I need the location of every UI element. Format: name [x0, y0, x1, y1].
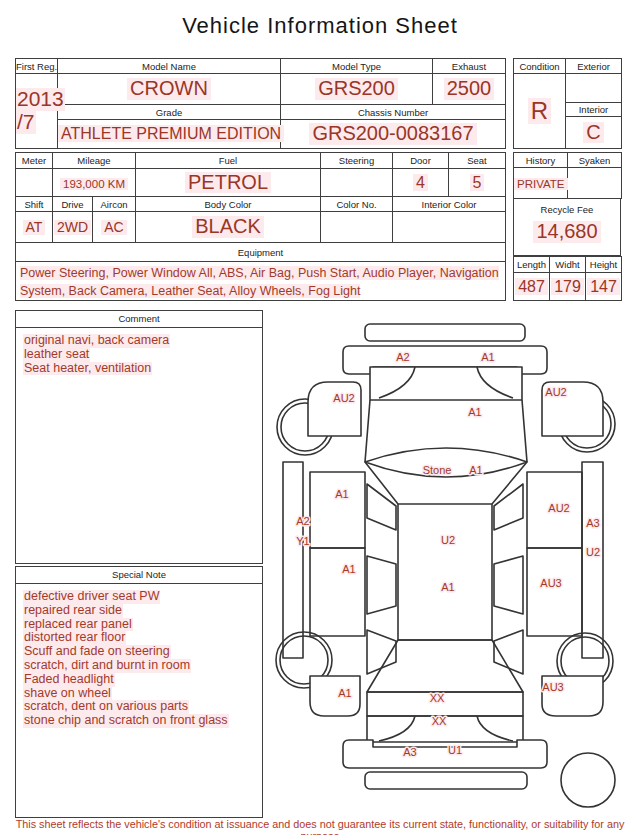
condition-grades-table: Condition Exterior R Interior C — [513, 58, 622, 149]
equipment-value: Power Steering, Power Window All, ABS, A… — [16, 262, 506, 301]
comment-box: Comment original navi, back camera leath… — [15, 310, 263, 564]
model-name-label: Model Name — [58, 59, 281, 74]
exhaust-label: Exhaust — [433, 59, 506, 74]
seat-value: 5 — [449, 169, 506, 197]
diagram-damage-label: U2 — [441, 534, 455, 546]
diagram-damage-label: A1 — [342, 563, 355, 575]
shift-label: Shift — [16, 197, 53, 212]
special-note-line: shave on wheel — [23, 687, 112, 701]
diagram-damage-label: AU2 — [548, 502, 569, 514]
steering-label: Steering — [321, 153, 393, 169]
fuel-label: Fuel — [136, 153, 321, 169]
special-note-line: distorted rear floor — [23, 631, 126, 645]
first-reg-value: 2013 /7 — [16, 74, 58, 149]
rear-bumper — [343, 740, 547, 768]
model-type-label: Model Type — [281, 59, 433, 74]
drive-value: 2WD — [53, 212, 93, 243]
aircon-label: Aircon — [93, 197, 136, 212]
special-note-line: replaced rear panel — [23, 618, 133, 632]
chassis-number-value: GRS200-0083167 — [281, 120, 506, 149]
length-label: Length — [514, 257, 550, 273]
aircon-value: AC — [93, 212, 136, 243]
grade-label: Grade — [58, 105, 281, 120]
diagram-damage-label: A1 — [335, 488, 348, 500]
interior-label: Interior — [566, 103, 622, 117]
diagram-damage-label: A3 — [586, 517, 599, 529]
height-label: Height — [586, 257, 622, 273]
comment-line: leather seat — [23, 348, 90, 362]
interior-color-label: Interior Color — [393, 197, 506, 212]
diagram-damage-label: A1 — [468, 406, 481, 418]
history-value: PRIVATE — [514, 168, 568, 199]
rear-trim-strip — [365, 772, 527, 789]
condition-label: Condition — [514, 59, 566, 74]
model-type-value: GRS200 — [281, 74, 433, 105]
special-note-box: Special Note defective driver seat PW re… — [15, 566, 263, 818]
spare-wheel — [561, 753, 615, 807]
width-label: Widht — [550, 257, 586, 273]
recycle-fee-value: 14,680 — [514, 221, 620, 243]
door-rear-left — [310, 548, 365, 636]
body-color-label: Body Color — [136, 197, 321, 212]
syaken-value — [568, 168, 622, 199]
diagram-damage-label: AU3 — [540, 577, 561, 589]
fender-rear-left — [310, 676, 360, 716]
hood-edges — [365, 400, 527, 462]
special-note-line: scratch, dent on various parts — [23, 700, 189, 714]
vehicle-identity-table: First Reg. Model Name Model Type Exhaust… — [15, 58, 506, 149]
steering-value — [321, 169, 393, 197]
trunk-lid — [367, 692, 523, 716]
first-reg-month: /7 — [16, 111, 36, 134]
diagram-damage-label: A1 — [338, 687, 351, 699]
special-note-line: defective driver seat PW — [23, 590, 160, 604]
chassis-number-label: Chassis Number — [281, 105, 506, 120]
meter-label: Meter — [16, 153, 53, 169]
seat-label: Seat — [449, 153, 506, 169]
diagram-damage-label: U2 — [586, 546, 600, 558]
color-no-label: Color No. — [321, 197, 393, 212]
front-trim-strip — [365, 324, 525, 341]
diagram-damage-label: XX — [430, 692, 445, 704]
door-rear-right — [527, 548, 582, 636]
diagram-damage-label: Y1 — [296, 535, 309, 547]
door-label: Door — [393, 153, 449, 169]
exterior-label: Exterior — [566, 59, 622, 74]
special-note-line: Scuff and fade on steering — [23, 645, 171, 659]
diagram-damage-label: A1 — [441, 581, 454, 593]
sill-right — [582, 462, 603, 658]
mileage-label: Mileage — [53, 153, 136, 169]
comment-header: Comment — [16, 311, 262, 328]
dimensions-table: Length Widht Height 487 179 147 — [513, 256, 622, 301]
model-name-value: CROWN — [58, 74, 281, 105]
diagram-damage-label: XX — [432, 715, 447, 727]
first-reg-year: 2013 — [16, 88, 65, 111]
door-front-left — [310, 472, 365, 548]
comment-line: Seat heater, ventilation — [23, 362, 152, 376]
shift-value: AT — [16, 212, 53, 243]
drive-label: Drive — [53, 197, 93, 212]
recycle-fee-box: Recycle Fee 14,680 — [513, 198, 621, 256]
fender-front-left — [308, 382, 361, 436]
door-value: 4 — [393, 169, 449, 197]
diagram-damage-label: AU3 — [542, 681, 563, 693]
fuel-value: PETROL — [136, 169, 321, 197]
diagram-damage-label: Stone — [423, 464, 452, 476]
first-reg-label: First Reg. — [16, 59, 58, 74]
diagram-damage-label: A2 — [296, 515, 309, 527]
roof — [398, 504, 492, 640]
length-value: 487 — [514, 273, 550, 301]
syaken-label: Syaken — [568, 153, 622, 168]
exhaust-value: 2500 — [433, 74, 506, 105]
grade-value: ATHLETE PREMIUM EDITION — [58, 120, 281, 149]
car-condition-diagram: A2A1AU2AU2A1StoneA1A1A2Y1AU2A3U2U2A1AU3A… — [265, 310, 637, 815]
exterior-value — [566, 74, 622, 103]
diagram-damage-label: A2 — [396, 351, 409, 363]
mileage-value: 193,000 KM — [53, 169, 136, 197]
vehicle-specs-table: Meter Mileage Fuel Steering Door Seat 19… — [15, 152, 506, 301]
special-note-line: repaired rear side — [23, 604, 123, 618]
special-note-header: Special Note — [16, 567, 262, 584]
sill-left — [283, 462, 303, 658]
diagram-damage-label: A1 — [481, 351, 494, 363]
interior-color-value — [393, 212, 506, 243]
page-title: Vehicle Information Sheet — [0, 13, 640, 39]
special-note-line: stone chip and scratch on front glass — [23, 714, 229, 728]
history-label: History — [514, 153, 568, 168]
body-color-value: BLACK — [136, 212, 321, 243]
history-table: History Syaken PRIVATE — [513, 152, 622, 199]
disclaimer-text: This sheet reflects the vehicle's condit… — [0, 818, 640, 835]
diagram-damage-label: U1 — [448, 744, 462, 756]
special-note-line: scratch, dirt and burnt in room — [23, 659, 191, 673]
diagram-damage-label: A3 — [403, 746, 416, 758]
special-note-body: defective driver seat PW repaired rear s… — [16, 584, 262, 728]
front-panel — [370, 367, 522, 400]
recycle-fee-label: Recycle Fee — [514, 204, 620, 215]
comment-line: original navi, back camera — [23, 334, 170, 348]
meter-value — [16, 169, 53, 197]
special-note-line: Faded headlight — [23, 673, 115, 687]
interior-value: C — [566, 117, 622, 149]
diagram-damage-label: A1 — [469, 464, 482, 476]
height-value: 147 — [586, 273, 622, 301]
equipment-label: Equipment — [16, 243, 506, 262]
comment-body: original navi, back camera leather seat … — [16, 328, 262, 375]
rear-window — [367, 640, 523, 692]
condition-value: R — [514, 74, 566, 149]
color-no-value — [321, 212, 393, 243]
width-value: 179 — [550, 273, 586, 301]
diagram-damage-label: AU2 — [333, 392, 354, 404]
diagram-damage-label: AU2 — [545, 386, 566, 398]
